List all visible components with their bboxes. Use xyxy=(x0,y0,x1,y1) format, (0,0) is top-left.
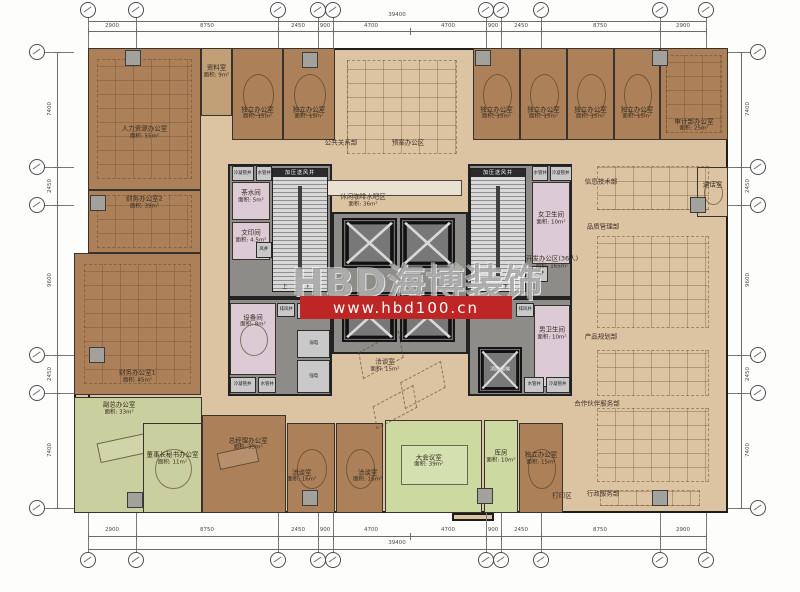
label-coffee-bar-area: 休闲咖啡水吧区面积: 36m² xyxy=(340,194,386,209)
room-label: 男卫生间面积: 10m² xyxy=(537,327,566,342)
desk-cluster xyxy=(97,59,192,179)
grid-axis-bubble xyxy=(128,2,144,18)
dim-tick xyxy=(54,508,61,509)
structural-column xyxy=(475,50,491,66)
dim-line-left xyxy=(57,52,58,508)
dim-tick xyxy=(660,28,661,35)
grid-axis-bubble xyxy=(310,552,326,568)
dimension-text: 2900 xyxy=(676,23,690,29)
room-pantry: 茶水间面积: 5m² xyxy=(232,182,270,220)
dim-line-top-segments xyxy=(88,31,706,32)
room-label: 库房面积: 10m² xyxy=(486,450,515,465)
dimension-text: 7400 xyxy=(745,102,751,116)
grid-axis-bubble xyxy=(750,385,766,401)
dimension-text: 900 xyxy=(488,527,499,533)
grid-axis-bubble xyxy=(750,44,766,60)
shaft-label: 弱电 xyxy=(309,341,318,346)
room-main-conference-room: 大会议室面积: 39m² xyxy=(385,420,482,513)
dim-tick xyxy=(410,28,411,35)
grid-axis-bubble xyxy=(493,2,509,18)
shaft-label: 强电 xyxy=(309,374,318,379)
conference-table xyxy=(401,445,468,485)
room-talk-room-2: 洽谈室面积: 16m² xyxy=(336,423,383,513)
dim-tick xyxy=(333,28,334,35)
grid-axis-bubble xyxy=(29,347,45,363)
dimension-text: 8750 xyxy=(593,23,607,29)
lift-fire-elevator: 消防电梯 xyxy=(478,347,522,393)
label-partner-services: 合作伙伴服务部 xyxy=(574,400,620,408)
room-label: 副总办公室面积: 33m² xyxy=(103,402,136,417)
dimension-text: 2450 xyxy=(514,23,528,29)
room-hr-office: 人力资源办公室面积: 55m² xyxy=(88,48,201,190)
structural-column xyxy=(652,490,668,506)
dim-tick xyxy=(278,28,279,35)
structural-column xyxy=(302,52,318,68)
shaft-condensate-shaft-1: 冷凝管井 xyxy=(232,166,254,181)
shaft-condensate-shaft-2: 冷凝管井 xyxy=(230,377,256,393)
dim-line-bottom-segments xyxy=(88,536,706,537)
grid-axis-bubble xyxy=(270,2,286,18)
label-center-talk-room: 洽谈室面积: 15m² xyxy=(370,359,399,374)
dimension-text: 4700 xyxy=(364,527,378,533)
grid-axis-bubble xyxy=(652,552,668,568)
grid-axis-bubble xyxy=(698,552,714,568)
dim-tick xyxy=(486,533,487,540)
dim-tick xyxy=(486,28,487,35)
shaft-label: 冷凝管井 xyxy=(234,171,252,176)
pressurized-air-shaft-label: 加压送风井 xyxy=(273,169,327,177)
dim-tick xyxy=(54,52,61,53)
shaft-condensate-shaft-3: 冷凝管井 xyxy=(550,166,572,181)
room-mens-toilet: 男卫生间面积: 10m² xyxy=(534,305,570,387)
dimension-text: 900 xyxy=(488,23,499,29)
grid-axis-bubble xyxy=(310,2,326,18)
shaft-label: 冷凝管井 xyxy=(549,382,567,387)
watermark-url: www.hbd100.cn xyxy=(300,296,512,319)
grid-axis-bubble xyxy=(533,552,549,568)
dim-tick xyxy=(541,28,542,35)
dim-tick xyxy=(501,28,502,35)
meeting-table xyxy=(577,74,606,116)
shaft-elv-room: 弱电 xyxy=(297,330,330,358)
meeting-table xyxy=(346,449,375,490)
dim-tick xyxy=(54,355,61,356)
structural-column xyxy=(127,492,143,508)
structural-column xyxy=(89,347,105,363)
shaft-label: 冷凝管井 xyxy=(552,171,570,176)
grid-axis-bubble xyxy=(750,197,766,213)
dim-tick xyxy=(501,533,502,540)
room-label: 茶水间面积: 5m² xyxy=(238,190,264,205)
grid-axis-bubble xyxy=(29,197,45,213)
grid-axis-bubble xyxy=(750,500,766,516)
pressurized-air-shaft-label: 加压送风井 xyxy=(471,169,525,177)
grid-axis-bubble xyxy=(29,159,45,175)
dim-tick xyxy=(318,533,319,540)
executive-desk xyxy=(216,445,258,470)
dimension-text: 7400 xyxy=(47,443,53,457)
dimension-text: 2450 xyxy=(291,23,305,29)
label-admin-services: 行政服务部 xyxy=(587,490,620,498)
meeting-table xyxy=(530,74,559,116)
shaft-label: 排风井 xyxy=(279,307,292,312)
grid-axis-bubble xyxy=(29,500,45,516)
dim-tick xyxy=(136,28,137,35)
grid-axis-bubble xyxy=(533,2,549,18)
dim-tick xyxy=(660,533,661,540)
meeting-table xyxy=(240,324,268,357)
shaft-condensate-shaft-4: 冷凝管井 xyxy=(546,377,570,393)
meeting-table xyxy=(624,74,652,116)
structural-column xyxy=(302,490,318,506)
room-gm-office: 总经理办公室面积: 35m² xyxy=(202,415,286,513)
dimension-text: 2450 xyxy=(291,527,305,533)
room-finance-office-1: 财务办公室1面积: 45m² xyxy=(74,253,201,395)
shaft-air-shaft-1: 风井 xyxy=(256,242,272,258)
dimension-text: 900 xyxy=(320,23,331,29)
shaft-label: 水管井 xyxy=(533,171,546,176)
elevator-x-icon xyxy=(480,349,520,391)
dimension-text: 2450 xyxy=(745,179,751,193)
dim-tick xyxy=(738,508,745,509)
dimension-text: 8750 xyxy=(593,527,607,533)
dimension-text: 2900 xyxy=(676,527,690,533)
dim-tick xyxy=(738,355,745,356)
meeting-table xyxy=(297,449,327,490)
dimension-text: 8750 xyxy=(200,23,214,29)
dimension-total-text: 39400 xyxy=(388,12,406,18)
grid-axis-bubble xyxy=(325,2,341,18)
structural-column xyxy=(125,50,141,66)
dimension-text: 4700 xyxy=(441,527,455,533)
structural-column xyxy=(652,50,668,66)
label-print-area: 打印区 xyxy=(552,492,572,500)
room-archive-room: 资料室面积: 9m² xyxy=(201,48,232,116)
grid-axis-bubble xyxy=(80,2,96,18)
grid-axis-bubble xyxy=(652,2,668,18)
dim-tick xyxy=(410,533,411,540)
dim-tick xyxy=(541,533,542,540)
dimension-text: 2900 xyxy=(105,527,119,533)
dim-tick xyxy=(54,167,61,168)
coffee-bar-counter xyxy=(312,180,462,196)
meeting-table xyxy=(528,449,555,490)
plan-bottom-step xyxy=(452,513,494,521)
grid-axis-bubble xyxy=(80,552,96,568)
desk-cluster xyxy=(666,55,723,132)
label-plan-office-area: 预案办公区 xyxy=(392,139,425,147)
shaft-label: 排风井 xyxy=(518,307,531,312)
grid-axis-bubble xyxy=(270,552,286,568)
dim-tick xyxy=(278,533,279,540)
dim-tick xyxy=(88,533,89,540)
shaft-water-shaft-2: 水管井 xyxy=(258,377,276,393)
shaft-label: 冷凝管井 xyxy=(234,382,252,387)
grid-axis-bubble xyxy=(29,44,45,60)
meeting-table xyxy=(155,449,191,490)
dimension-text: 2900 xyxy=(105,23,119,29)
dim-tick xyxy=(318,28,319,35)
dimension-text: 2450 xyxy=(745,367,751,381)
shaft-label: 水管井 xyxy=(527,382,540,387)
desk-cluster xyxy=(84,264,192,384)
dim-tick xyxy=(333,533,334,540)
dim-line-right xyxy=(741,52,742,508)
label-it-department: 信息技术部 xyxy=(585,178,618,186)
dim-tick xyxy=(738,393,745,394)
shaft-power-room: 强电 xyxy=(297,360,330,393)
room-chairman-secretary-office: 董事长秘书办公室面积: 11m² xyxy=(143,423,202,513)
dimension-text: 2450 xyxy=(514,527,528,533)
label-product-planning: 产品规划部 xyxy=(585,333,618,341)
shaft-water-shaft-4: 水管井 xyxy=(524,377,544,393)
dim-tick xyxy=(88,28,89,35)
shaft-water-shaft-3: 水管井 xyxy=(532,166,548,181)
dimension-text: 4700 xyxy=(364,23,378,29)
open-desk-cluster xyxy=(597,236,709,328)
dimension-text: 4700 xyxy=(441,23,455,29)
room-private-office-4: 独立办公室面积: 15m² xyxy=(520,48,567,140)
structural-column xyxy=(477,488,493,504)
shaft-label: 水管井 xyxy=(260,382,273,387)
room-audit-office: 审计部办公室面积: 25m² xyxy=(660,48,728,140)
grid-axis-bubble xyxy=(493,552,509,568)
room-label: 女卫生间面积: 10m² xyxy=(536,212,565,227)
grid-axis-bubble xyxy=(128,552,144,568)
dim-line-bottom-total xyxy=(88,549,706,550)
room-equipment-room: 设备间面积: 8m² xyxy=(230,303,276,375)
shaft-water-shaft-1: 水管井 xyxy=(256,166,272,181)
grid-axis-bubble xyxy=(698,2,714,18)
dimension-text: 7400 xyxy=(47,102,53,116)
dimension-text: 2450 xyxy=(47,367,53,381)
room-private-office-1: 独立办公室面积: 15m² xyxy=(232,48,283,140)
dim-tick xyxy=(136,533,137,540)
dimension-total-text: 39400 xyxy=(388,540,406,546)
dim-tick xyxy=(54,393,61,394)
dimension-text: 8750 xyxy=(200,527,214,533)
label-public-relations: 公共关系部 xyxy=(325,139,358,147)
dim-tick xyxy=(738,205,745,206)
structural-column xyxy=(690,197,706,213)
dim-tick xyxy=(706,28,707,35)
open-desk-cluster xyxy=(597,350,709,396)
grid-axis-bubble xyxy=(478,552,494,568)
desk-cluster xyxy=(97,195,192,247)
grid-axis-bubble xyxy=(325,552,341,568)
label-quality-management: 品质管理部 xyxy=(587,223,620,231)
grid-axis-bubble xyxy=(750,347,766,363)
shaft-label: 水管井 xyxy=(257,171,270,176)
floor-plan-canvas: 人力资源办公室面积: 55m²资料室面积: 9m²独立办公室面积: 15m²独立… xyxy=(0,0,800,592)
room-private-office-5: 独立办公室面积: 15m² xyxy=(567,48,614,140)
dimension-text: 9600 xyxy=(745,273,751,287)
dim-tick xyxy=(54,205,61,206)
open-desk-cluster xyxy=(597,408,709,482)
grid-axis-bubble xyxy=(750,159,766,175)
dim-line-top-total xyxy=(88,21,706,22)
dim-tick xyxy=(738,52,745,53)
shaft-label: 风井 xyxy=(260,247,269,252)
meeting-table xyxy=(243,74,274,116)
dimension-text: 900 xyxy=(320,527,331,533)
dimension-text: 2450 xyxy=(47,179,53,193)
structural-column xyxy=(90,195,106,211)
room-label: 资料室面积: 9m² xyxy=(204,65,230,80)
grid-axis-bubble xyxy=(478,2,494,18)
dim-tick xyxy=(738,167,745,168)
meeting-table xyxy=(483,74,512,116)
dimension-text: 9600 xyxy=(47,273,53,287)
dimension-text: 7400 xyxy=(745,443,751,457)
meeting-table xyxy=(294,74,326,116)
grid-axis-bubble xyxy=(29,385,45,401)
dim-tick xyxy=(706,533,707,540)
